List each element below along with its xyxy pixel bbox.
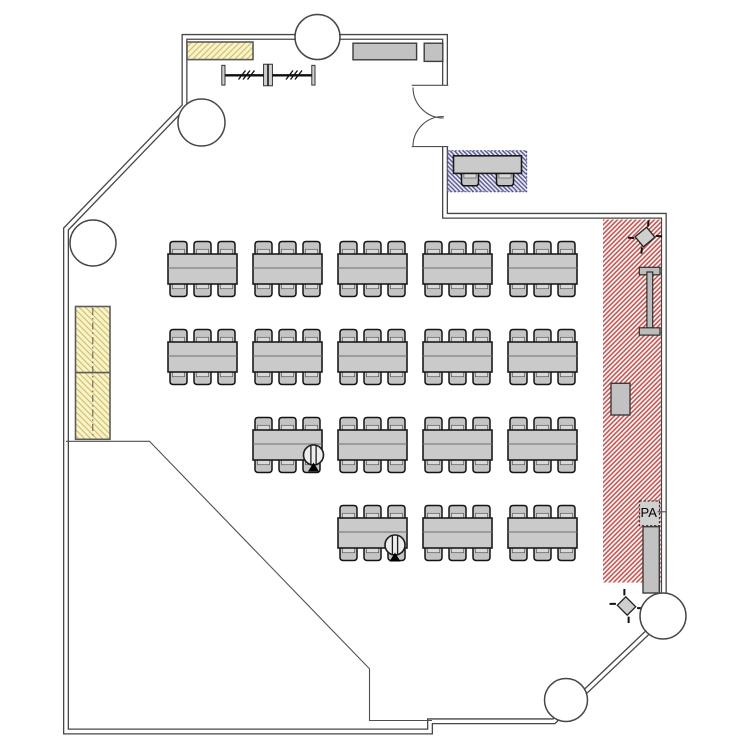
- floor-plan-canvas: PA: [0, 0, 750, 750]
- table-with-chairs: [423, 506, 492, 561]
- table-with-chairs: [168, 242, 237, 297]
- table: [423, 342, 492, 372]
- table: [508, 342, 577, 372]
- sideboard-hatched: [187, 42, 253, 60]
- table: [338, 430, 407, 460]
- table: [423, 254, 492, 284]
- floor-plan: PA: [0, 0, 750, 750]
- table-with-chairs: [508, 330, 577, 385]
- shelf-short: [424, 43, 443, 61]
- pa-label: PA: [641, 505, 658, 520]
- table: [253, 254, 322, 284]
- table-with-chairs: [508, 418, 577, 473]
- structural-column: [70, 220, 116, 266]
- table: [423, 518, 492, 548]
- table: [508, 430, 577, 460]
- table-with-chairs: [338, 330, 407, 385]
- speaker-icon: [610, 589, 644, 623]
- table: [508, 254, 577, 284]
- wardrobe-cabinet: [76, 307, 111, 440]
- table-grid: [168, 242, 577, 561]
- av-box: [611, 383, 630, 415]
- table-with-chairs: [423, 330, 492, 385]
- table: [168, 342, 237, 372]
- table: [338, 342, 407, 372]
- table-with-chairs: [168, 330, 237, 385]
- thin-lines: [66, 85, 448, 720]
- table: [508, 518, 577, 548]
- door-swing-arcs: [413, 88, 444, 147]
- shelf-long: [353, 43, 417, 60]
- table-with-chairs: [253, 330, 322, 385]
- table-with-chairs: [338, 418, 407, 473]
- registration-desk: [454, 156, 522, 174]
- table: [423, 430, 492, 460]
- table-with-chairs: [508, 506, 577, 561]
- table-with-chairs: [338, 242, 407, 297]
- room-boundary-line: [66, 441, 432, 720]
- coat-rack-icon: [222, 64, 315, 86]
- structural-column: [178, 99, 225, 146]
- structural-column: [640, 593, 686, 639]
- table: [253, 342, 322, 372]
- table-with-chairs: [423, 242, 492, 297]
- structural-column: [545, 679, 588, 722]
- table-with-chairs: [508, 242, 577, 297]
- table: [168, 254, 237, 284]
- table-with-chairs: [253, 242, 322, 297]
- table: [338, 254, 407, 284]
- structural-column: [295, 15, 340, 60]
- pa-rack-column: [643, 527, 659, 593]
- table-with-chairs: [423, 418, 492, 473]
